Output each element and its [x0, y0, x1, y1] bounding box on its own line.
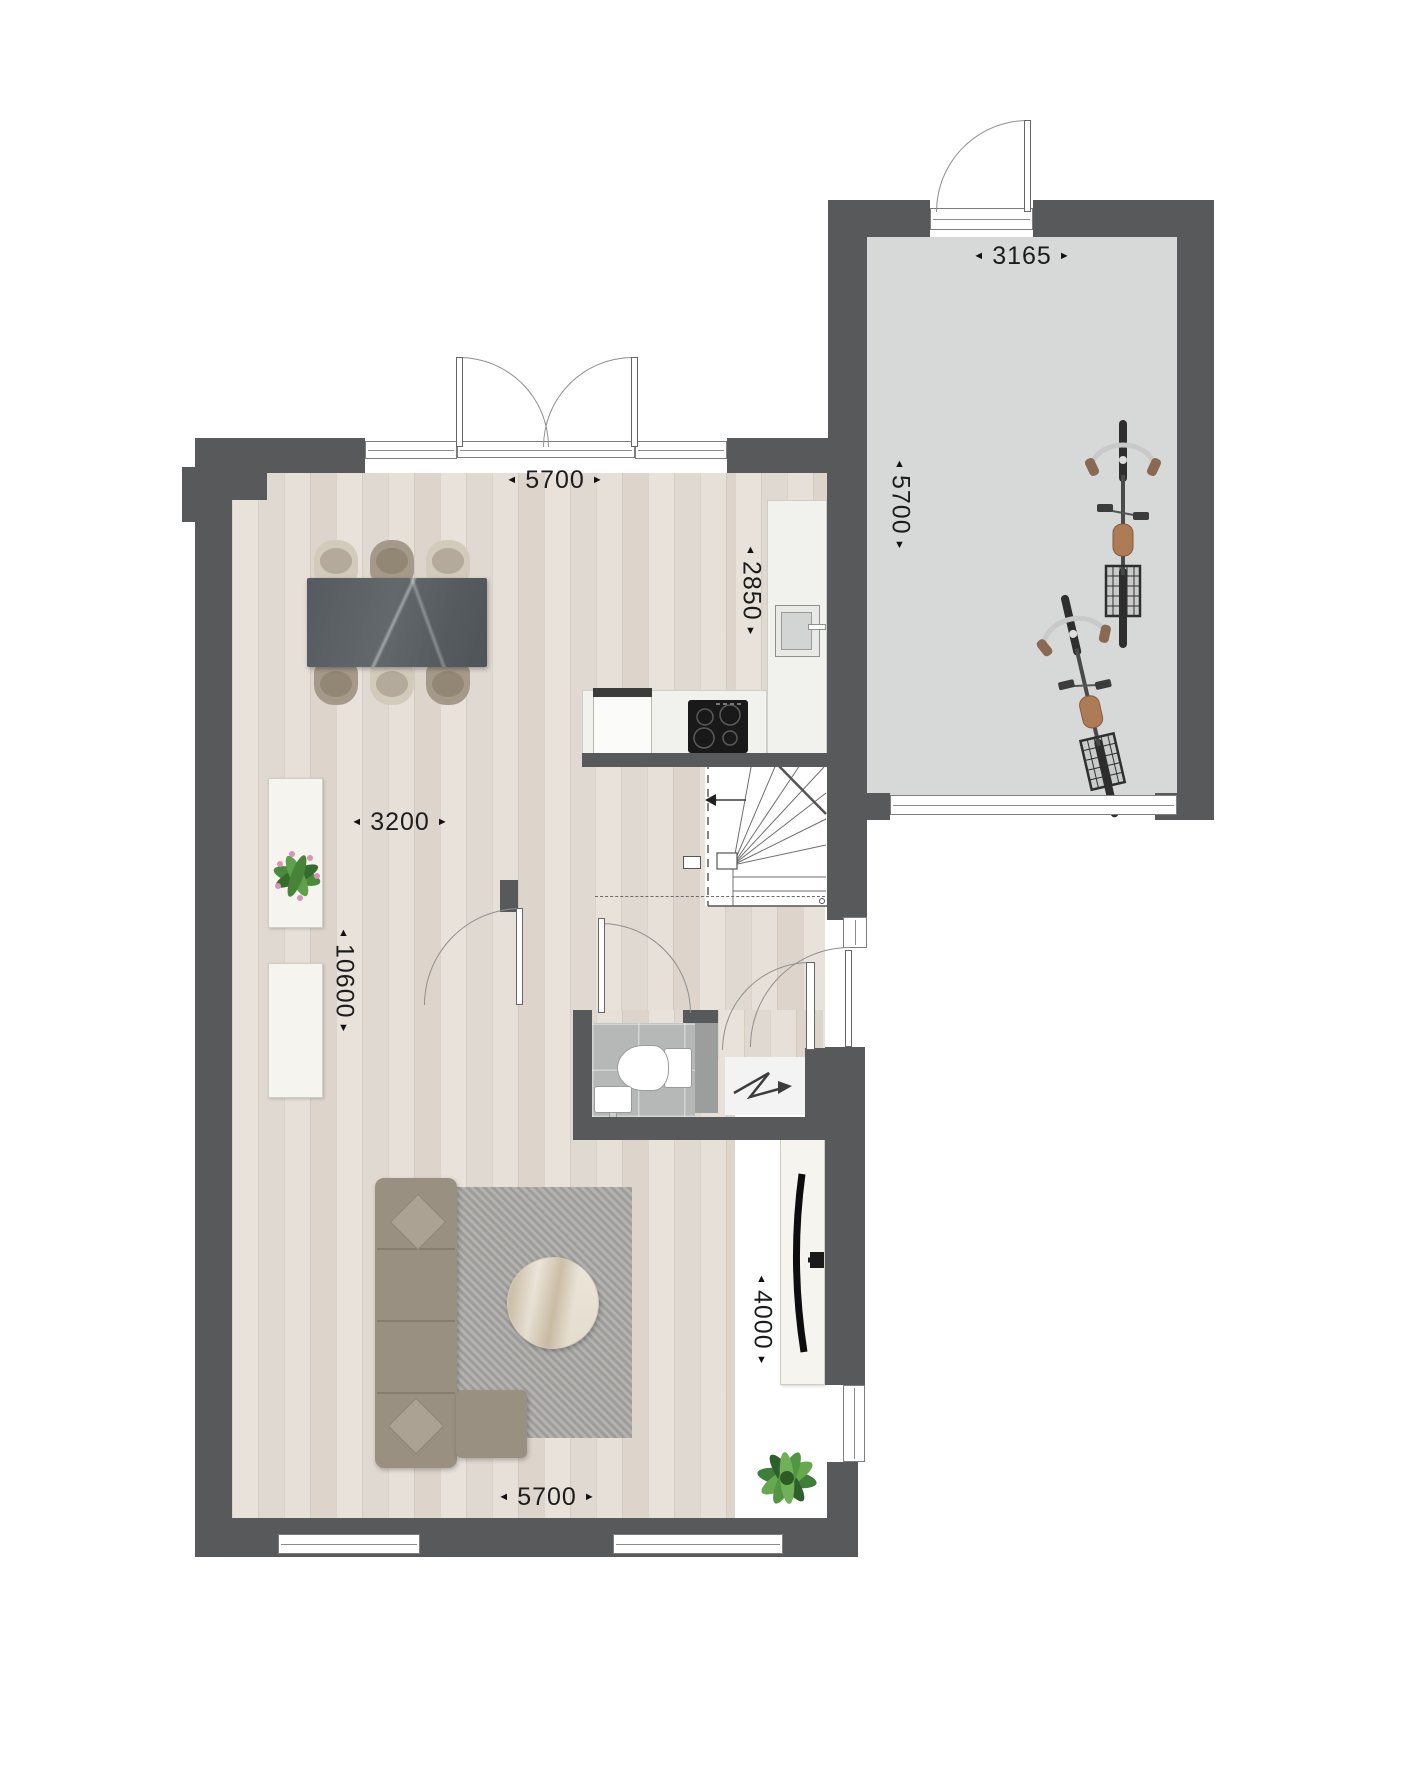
window-bottom-left [278, 1534, 420, 1554]
dim-arrow-right-icon: ► [437, 817, 449, 828]
dimension-garage-width: ◄ 3165 ► [952, 242, 1092, 270]
garage-wall-right [1177, 200, 1214, 820]
garage-wall-left [828, 200, 867, 630]
wall-top-segment-a [213, 438, 365, 473]
garage-door-leaf [1024, 120, 1031, 212]
dim-arrow-left-icon: ◄ [973, 251, 985, 262]
sofa-cushion-seam [377, 1320, 455, 1322]
wall-left [195, 438, 232, 1557]
dim-arrow-up-icon: ▲ [756, 1274, 768, 1285]
dimension-value: 3165 [992, 242, 1052, 271]
dimension-garage-depth: ▲ 5700 ▼ [886, 443, 914, 567]
floor-above-outline [595, 896, 825, 897]
dimension-value: 2850 [737, 561, 766, 621]
kitchen-appliance-grill [593, 688, 652, 697]
front-door-leaf [845, 950, 852, 1047]
dim-arrow-down-icon: ▼ [338, 1023, 350, 1034]
sofa-chaise [456, 1390, 527, 1458]
wall-right-mid [825, 1047, 865, 1385]
wall-meter-closet-right [805, 1048, 827, 1123]
kitchen-appliance [593, 695, 652, 755]
window-top-left [365, 441, 457, 459]
hall-post [683, 856, 701, 869]
wc-duct-shaft [695, 1023, 718, 1113]
dim-arrow-up-icon: ▲ [338, 928, 350, 939]
dining-chair [426, 540, 470, 582]
dimension-living-width-mid: ◄ 3200 ► [330, 808, 470, 836]
dimension-sitting-depth: ▲ 4000 ▼ [748, 1272, 776, 1368]
dining-chair [314, 663, 358, 705]
wall-kitchen-hall [582, 753, 830, 767]
dimension-value: 5700 [886, 475, 915, 535]
electrical-meter-symbol-icon [730, 1065, 800, 1110]
dim-arrow-left-icon: ◄ [498, 1492, 510, 1503]
dim-arrow-down-icon: ▼ [894, 540, 906, 551]
dim-arrow-right-icon: ► [592, 475, 604, 486]
dimension-kitchen-depth: ▲ 2850 ▼ [737, 543, 765, 639]
wc-hand-basin [594, 1086, 632, 1113]
dimension-value: 4000 [748, 1290, 777, 1350]
stair-newel-post [717, 853, 737, 869]
dimension-value: 10600 [330, 944, 359, 1019]
tv-icon [788, 1168, 830, 1358]
wall-right-bottom-corner [827, 1462, 858, 1522]
dining-chair [370, 663, 414, 705]
window-bottom-right [613, 1534, 783, 1554]
sofa-cushion-seam [377, 1392, 455, 1394]
dimension-value: 5700 [525, 466, 585, 495]
dim-arrow-down-icon: ▼ [756, 1355, 768, 1366]
french-door-right-leaf [631, 357, 638, 447]
sideboard-cabinet-lower [268, 963, 323, 1098]
floor-plan-canvas: ◄ 3165 ► ▲ 5700 ▼ ◄ 5700 ► ▲ 2850 ▼ ◄ 32… [0, 0, 1417, 1772]
dim-arrow-left-icon: ◄ [506, 475, 518, 486]
window-right-lower [843, 1385, 865, 1462]
dimension-living-width-top: ◄ 5700 ► [485, 466, 625, 494]
dimension-living-depth: ▲ 10600 ▼ [330, 922, 358, 1040]
kitchen-sink-basin [781, 612, 812, 650]
kitchen-faucet-icon [808, 624, 826, 630]
dimension-value: 3200 [370, 808, 430, 837]
dining-chair [314, 540, 358, 582]
flower-plant-icon [270, 846, 324, 906]
wall-wc-left [573, 1010, 592, 1117]
dining-table [307, 578, 487, 667]
staircase [702, 757, 832, 909]
cooktop [688, 700, 748, 753]
wall-top-segment-b [727, 438, 828, 473]
garage-door-swing-arc [936, 120, 1028, 212]
dimension-value: 5700 [517, 1483, 577, 1512]
floor-plant-icon [753, 1443, 821, 1513]
french-door-left-leaf [456, 357, 463, 447]
french-door-right-arc [543, 357, 633, 447]
wall-wc-bottom [573, 1117, 827, 1140]
dim-arrow-left-icon: ◄ [351, 817, 363, 828]
dim-arrow-right-icon: ► [1059, 251, 1071, 262]
wc-door-leaf [598, 918, 605, 1013]
dim-arrow-down-icon: ▼ [745, 626, 757, 637]
dim-arrow-up-icon: ▲ [894, 459, 906, 470]
dim-arrow-right-icon: ► [584, 1492, 596, 1503]
french-door-left-arc [459, 357, 549, 447]
dimension-living-width-bottom: ◄ 5700 ► [477, 1483, 617, 1511]
dining-chair [370, 540, 414, 582]
window-top-right [635, 441, 727, 459]
coffee-table [507, 1257, 599, 1349]
toilet-bowl [617, 1045, 669, 1091]
garage-wall-bottom-left [865, 793, 890, 820]
wall-left-step [182, 467, 196, 522]
dim-arrow-up-icon: ▲ [745, 545, 757, 556]
garage-window-bottom [890, 795, 1177, 815]
meter-closet-door-leaf [806, 962, 815, 1050]
front-door-sidelight [843, 917, 867, 948]
dining-chair [426, 663, 470, 705]
hall-door-leaf [516, 908, 523, 1005]
